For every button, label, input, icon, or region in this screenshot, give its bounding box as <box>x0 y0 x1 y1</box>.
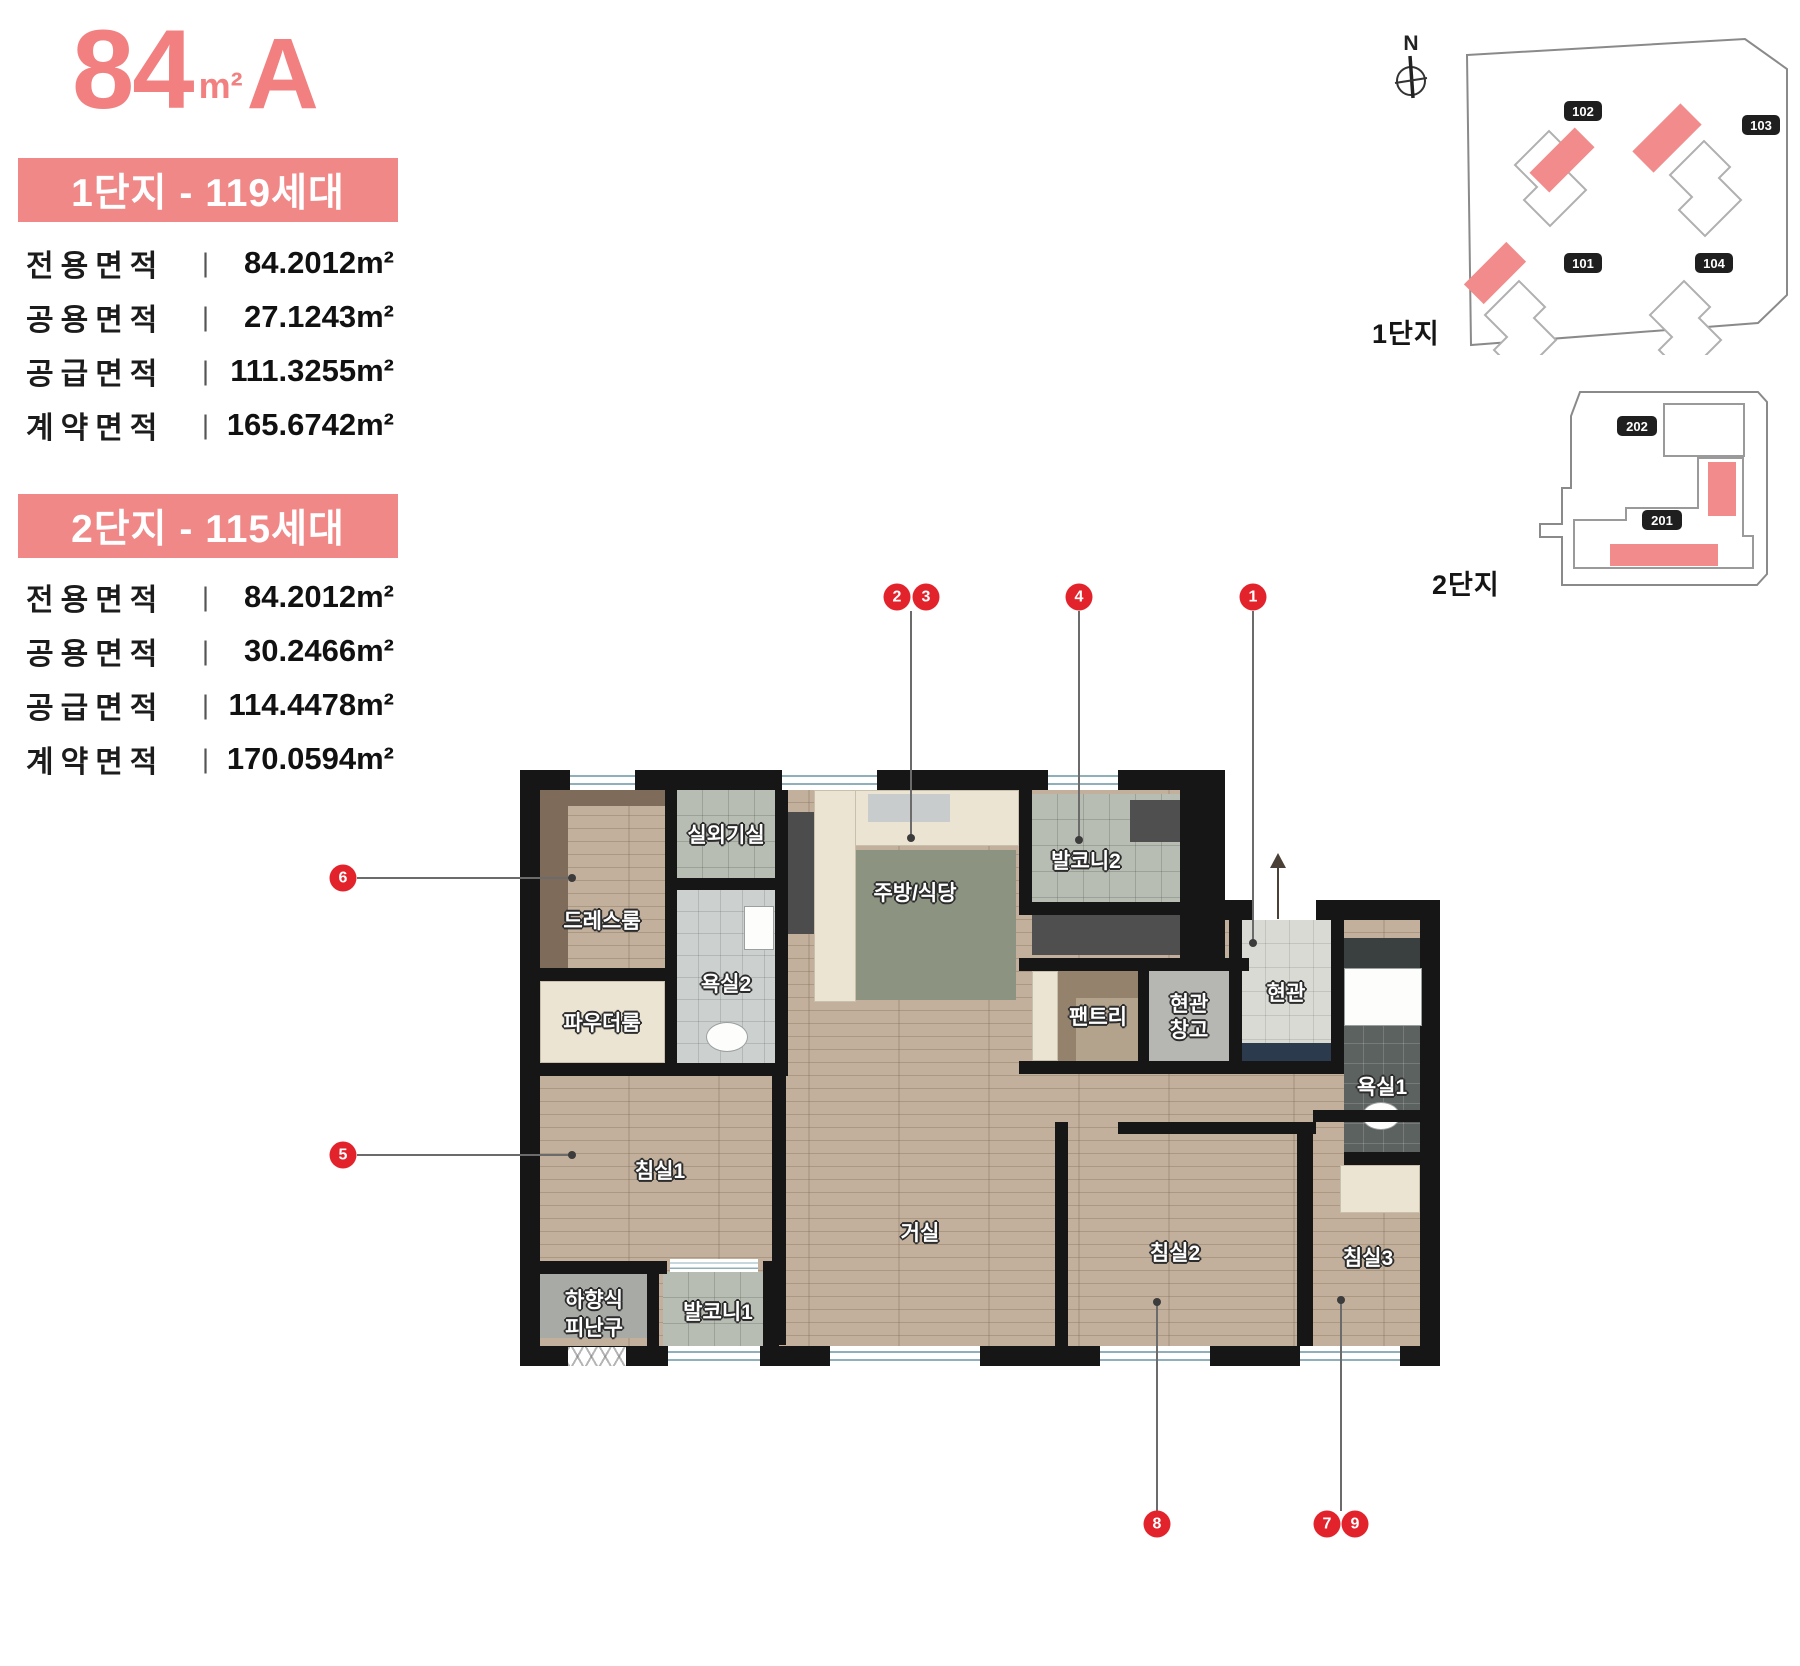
closet <box>1032 971 1058 1061</box>
room-label-bedroom3: 침실3 <box>1343 1242 1393 1272</box>
room-label-powder-room: 파우더룸 <box>563 1007 640 1037</box>
leader-line <box>357 1154 572 1156</box>
room-label-outdoor-unit: 실외기실 <box>687 819 764 849</box>
area-label: 계약면적 <box>26 403 202 447</box>
area-value: 170.0594m² <box>215 741 394 777</box>
divider: | <box>202 636 209 667</box>
site2-label: 2단지 <box>1432 563 1500 602</box>
site1-label: 1단지 <box>1372 312 1440 351</box>
area-label: 공급면적 <box>26 349 202 393</box>
sink <box>744 906 774 950</box>
leader-dot <box>1249 939 1257 947</box>
compass-icon: N <box>1390 32 1434 104</box>
leader-dot <box>1337 1296 1345 1304</box>
area-value: 84.2012m² <box>215 579 394 615</box>
marker-8: 8 <box>1144 1511 1171 1538</box>
svg-text:103: 103 <box>1750 118 1772 133</box>
room-label-living: 거실 <box>901 1217 940 1247</box>
room-label-bedroom2: 침실2 <box>1150 1237 1200 1267</box>
window <box>668 1346 760 1366</box>
divider: | <box>202 744 209 775</box>
window <box>830 1346 980 1366</box>
room-label-bathroom1: 욕실1 <box>1357 1071 1407 1101</box>
divider: | <box>202 248 209 279</box>
window <box>1300 1346 1400 1366</box>
divider: | <box>202 690 209 721</box>
area-value: 84.2012m² <box>215 245 394 281</box>
room-label-entry-storage: 창고 <box>1170 1014 1209 1044</box>
divider: | <box>202 582 209 613</box>
svg-text:101: 101 <box>1572 256 1594 271</box>
room-label-kitchen: 주방/식당 <box>873 877 956 907</box>
unit-type-title: 84m²A <box>72 22 319 117</box>
marker-2: 2 <box>884 584 911 611</box>
leader-line <box>910 611 912 838</box>
area-label: 전용면적 <box>26 575 202 619</box>
leader-dot <box>1075 836 1083 844</box>
divider: | <box>202 410 209 441</box>
unit-size-number: 84 <box>72 22 193 117</box>
svg-text:N: N <box>1403 32 1418 55</box>
table-row: 계약면적|165.6742m² <box>26 398 394 452</box>
svg-text:202: 202 <box>1626 419 1648 434</box>
leader-dot <box>907 834 915 842</box>
area-label: 전용면적 <box>26 241 202 285</box>
leader-line <box>1156 1302 1158 1511</box>
room-label-balcony1: 발코니1 <box>683 1296 753 1326</box>
bath1-shelf <box>1344 938 1420 968</box>
leader-line <box>357 877 572 879</box>
leader-dot <box>1153 1298 1161 1306</box>
floor-plan: 실외기실 드레스룸 파우더룸 욕실2 주방/식당 발코니2 팬트리 현관 창고 … <box>520 770 1440 1366</box>
marker-3: 3 <box>913 584 940 611</box>
divider: | <box>202 302 209 333</box>
leader-dot <box>568 874 576 882</box>
complex2-area-table: 전용면적|84.2012m² 공용면적|30.2466m² 공급면적|114.4… <box>26 570 394 786</box>
svg-text:201: 201 <box>1651 513 1673 528</box>
area-value: 30.2466m² <box>215 633 394 669</box>
svg-text:104: 104 <box>1703 256 1725 271</box>
room-label-balcony2: 발코니2 <box>1051 845 1121 875</box>
hatch-mark <box>568 1347 626 1366</box>
marker-1: 1 <box>1240 584 1267 611</box>
complex1-banner: 1단지 - 119세대 <box>18 158 398 222</box>
area-label: 공용면적 <box>26 629 202 673</box>
divider: | <box>202 356 209 387</box>
area-value: 165.6742m² <box>215 407 394 443</box>
entrance-step <box>1242 1043 1331 1063</box>
toilet <box>706 1022 748 1052</box>
room-label-bathroom2: 욕실2 <box>701 968 751 998</box>
marker-7: 7 <box>1314 1511 1341 1538</box>
room-label-entrance: 현관 <box>1267 977 1306 1007</box>
siteplan-complex2: 202 201 <box>1538 388 1778 598</box>
area-value: 114.4478m² <box>215 687 394 723</box>
table-row: 공급면적|114.4478m² <box>26 678 394 732</box>
marker-6: 6 <box>330 865 357 892</box>
bedroom3-closet <box>1340 1165 1420 1213</box>
marker-5: 5 <box>330 1142 357 1169</box>
leader-line <box>1252 611 1254 943</box>
room-label-pantry: 팬트리 <box>1069 1001 1127 1031</box>
closet <box>1130 800 1180 842</box>
area-label: 계약면적 <box>26 737 202 781</box>
complex2-banner: 2단지 - 115세대 <box>18 494 398 558</box>
table-row: 공급면적|111.3255m² <box>26 344 394 398</box>
marker-9: 9 <box>1342 1511 1369 1538</box>
cooktop <box>868 794 950 822</box>
area-value: 111.3255m² <box>215 353 394 389</box>
leader-dot <box>568 1151 576 1159</box>
wardrobe <box>568 790 665 806</box>
wardrobe <box>540 790 568 972</box>
entrance-door-opening <box>1254 900 1316 920</box>
unit-size-unit: m² <box>199 65 243 107</box>
siteplan-complex1: 102 103 101 104 <box>1455 25 1800 355</box>
room-label-dressroom: 드레스룸 <box>563 905 640 935</box>
closet <box>1032 915 1180 955</box>
table-row: 전용면적|84.2012m² <box>26 236 394 290</box>
bath1-sink-counter <box>1344 968 1422 1026</box>
area-label: 공급면적 <box>26 683 202 727</box>
window <box>1100 1346 1210 1366</box>
window <box>570 770 635 790</box>
page: 84m²A 1단지 - 119세대 전용면적|84.2012m² 공용면적|27… <box>0 0 1800 1666</box>
room-label-escape-hatch: 피난구 <box>565 1312 623 1342</box>
area-label: 공용면적 <box>26 295 202 339</box>
marker-4: 4 <box>1066 584 1093 611</box>
table-row: 전용면적|84.2012m² <box>26 570 394 624</box>
leader-line <box>1078 611 1080 840</box>
table-row: 공용면적|30.2466m² <box>26 624 394 678</box>
complex1-area-table: 전용면적|84.2012m² 공용면적|27.1243m² 공급면적|111.3… <box>26 236 394 452</box>
svg-text:102: 102 <box>1572 104 1594 119</box>
leader-line <box>1340 1300 1342 1511</box>
table-row: 공용면적|27.1243m² <box>26 290 394 344</box>
table-row: 계약면적|170.0594m² <box>26 732 394 786</box>
room-label-bedroom1: 침실1 <box>635 1155 685 1185</box>
tall-cabinet <box>788 812 814 934</box>
window <box>782 770 877 790</box>
kitchen-rug <box>856 850 1016 1000</box>
room-label-escape-hatch: 하향식 <box>565 1284 623 1314</box>
window <box>1048 770 1118 790</box>
window <box>670 1259 758 1272</box>
unit-size-letter: A <box>247 32 319 117</box>
kitchen-counter <box>814 790 856 1002</box>
entry-direction-arrow <box>1270 853 1286 868</box>
area-value: 27.1243m² <box>215 299 394 335</box>
